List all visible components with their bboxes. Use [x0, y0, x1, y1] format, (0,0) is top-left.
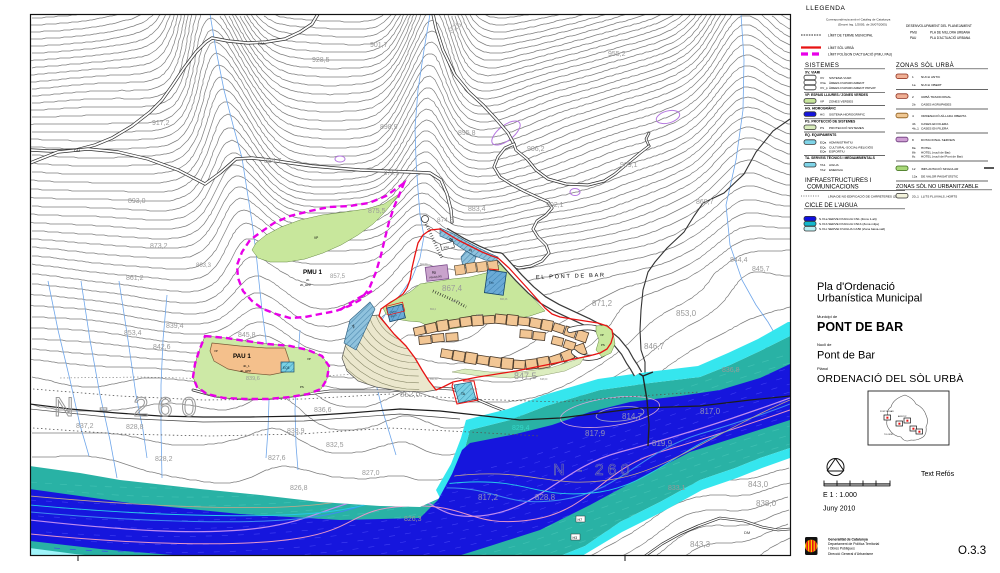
svg-text:829,4: 829,4 [512, 425, 530, 432]
svg-text:848,00: 848,00 [540, 378, 548, 381]
svg-text:VP: VP [314, 236, 318, 240]
svg-text:LÍMIT SÒL URBÀ: LÍMIT SÒL URBÀ [828, 45, 855, 50]
svg-text:842,6: 842,6 [153, 344, 171, 351]
svg-text:828,8: 828,8 [126, 424, 144, 431]
svg-text:865,30: 865,30 [476, 314, 484, 317]
svg-text:HG: HG [820, 113, 825, 117]
svg-text:INFRAESTRUCTURES I: INFRAESTRUCTURES I [805, 178, 872, 184]
svg-text:2b: 2b [912, 103, 916, 107]
svg-text:909,1: 909,1 [620, 162, 638, 169]
svg-text:XV_p: XV_p [820, 86, 828, 90]
svg-text:845,06: 845,06 [470, 388, 478, 391]
svg-text:CICLE DE L'AIGUA: CICLE DE L'AIGUA [805, 203, 858, 209]
svg-text:874,6: 874,6 [437, 217, 454, 224]
svg-text:814,7: 814,7 [622, 412, 643, 421]
svg-text:SISTEMA HIDROGRÀFIC: SISTEMA HIDROGRÀFIC [829, 113, 866, 117]
svg-text:COMUNICACIONS: COMUNICACIONS [807, 185, 859, 191]
svg-text:1a: 1a [912, 83, 916, 87]
svg-text:Nucli de: Nucli de [817, 342, 832, 347]
svg-text:839,4: 839,4 [166, 323, 184, 330]
svg-text:ARISTOT: ARISTOT [898, 415, 907, 418]
svg-text:875,5: 875,5 [368, 208, 386, 215]
svg-text:XV. VIARI: XV. VIARI [805, 71, 820, 75]
svg-text:Urbanística Municipal: Urbanística Municipal [817, 293, 922, 305]
svg-text:836,8: 836,8 [722, 367, 740, 374]
svg-text:4: 4 [912, 114, 914, 118]
svg-text:HOTEL (nucli del Pont de Bar): HOTEL (nucli del Pont de Bar) [921, 155, 963, 159]
svg-text:Text Refós: Text Refós [921, 471, 955, 478]
svg-text:PAU 1: PAU 1 [233, 353, 251, 360]
svg-text:817,2: 817,2 [478, 493, 499, 502]
svg-text:HG. HIDROGRÀFIC: HG. HIDROGRÀFIC [805, 105, 836, 110]
svg-text:836,6: 836,6 [314, 407, 332, 414]
svg-text:884,7: 884,7 [264, 158, 282, 165]
svg-text:833,9: 833,9 [287, 428, 305, 435]
svg-text:LLITS FLUVIALS, HORTS: LLITS FLUVIALS, HORTS [921, 194, 957, 198]
svg-text:URBÀ TRADICIONAL: URBÀ TRADICIONAL [921, 95, 951, 99]
svg-text:839,6: 839,6 [246, 376, 260, 382]
svg-text:ZONAS SÒL URBÀ: ZONAS SÒL URBÀ [896, 62, 954, 69]
svg-text:PS: PS [300, 385, 304, 389]
svg-text:(Decret leg. 1/2005, de 26/07/: (Decret leg. 1/2005, de 26/07/2005) [838, 23, 887, 27]
svg-text:CASES AGRUPADES: CASES AGRUPADES [921, 103, 951, 107]
svg-text:PS. PROTECCIÓ DE SISTEMES: PS. PROTECCIÓ DE SISTEMES [805, 119, 856, 124]
svg-text:S.X1c SERVEI D'AIGUA CA50 (Zo: S.X1c SERVEI D'AIGUA CA50 (Zona baixa-va… [819, 227, 885, 231]
svg-text:817,9: 817,9 [585, 429, 606, 438]
svg-text:TA. SERVEIS TÈCNICS I MEDIAMBI: TA. SERVEIS TÈCNICS I MEDIAMBIENTALS [805, 155, 876, 160]
svg-text:4b: 4b [912, 122, 916, 126]
svg-text:PS: PS [820, 126, 824, 130]
svg-text:Correspondència amb el Catàleg: Correspondència amb el Catàleg de Catalu… [826, 18, 891, 22]
svg-text:867,4: 867,4 [442, 284, 463, 293]
svg-text:VP: VP [214, 349, 218, 353]
svg-text:N - 260: N - 260 [553, 462, 633, 479]
svg-text:ESPORTIU: ESPORTIU [829, 150, 845, 154]
svg-text:EQa: EQa [820, 141, 826, 145]
svg-text:861,50: 861,50 [420, 263, 428, 266]
svg-text:PROTECCIÓ SISTEMES: PROTECCIÓ SISTEMES [829, 125, 864, 130]
svg-text:866,46: 866,46 [500, 298, 508, 301]
svg-text:DE VALOR PAISATGÍSTIC: DE VALOR PAISATGÍSTIC [921, 175, 959, 179]
svg-text:843,3: 843,3 [690, 540, 711, 549]
svg-text:PONT DE BAR: PONT DE BAR [880, 410, 894, 413]
svg-text:864,2: 864,2 [430, 308, 437, 311]
svg-text:838,0: 838,0 [756, 499, 777, 508]
svg-text:CULTURAL-SOCIAL-RELIGIÓS: CULTURAL-SOCIAL-RELIGIÓS [829, 144, 873, 149]
svg-text:826,3: 826,3 [404, 516, 422, 523]
svg-text:Juny 2010: Juny 2010 [823, 506, 855, 513]
svg-text:NUCLI ANTIC: NUCLI ANTIC [921, 75, 941, 79]
svg-text:898,9: 898,9 [380, 124, 398, 131]
svg-text:20_1: 20_1 [912, 194, 919, 198]
svg-text:S.X1a SERVEI D'AIGUA CN1 (Zon: S.X1a SERVEI D'AIGUA CN1 (Zona 1-alt) [819, 217, 877, 221]
svg-text:12: 12 [912, 167, 916, 171]
svg-text:Municipi de: Municipi de [817, 314, 838, 319]
svg-text:TA2: TA2 [820, 168, 826, 172]
svg-text:837,2: 837,2 [76, 423, 94, 430]
svg-text:845,8: 845,8 [238, 332, 256, 339]
svg-text:2b: 2b [306, 278, 310, 282]
svg-text:883,4: 883,4 [468, 206, 486, 213]
svg-text:ADMINISTRATIU: ADMINISTRATIU [829, 141, 853, 145]
svg-text:E 1 : 1.000: E 1 : 1.000 [823, 492, 857, 499]
svg-text:VP. ESPAIS LLIURES / ZONES VER: VP. ESPAIS LLIURES / ZONES VERDES [805, 93, 869, 97]
svg-text:902,1: 902,1 [546, 202, 564, 209]
svg-text:TOLORIU: TOLORIU [884, 434, 893, 436]
svg-text:XVa: XVa [820, 81, 826, 85]
svg-text:ÀREES D'APARCAMENT PRIVAT: ÀREES D'APARCAMENT PRIVAT [829, 86, 876, 90]
svg-text:ÀREES D'APARCAMENT: ÀREES D'APARCAMENT [829, 81, 865, 85]
svg-text:857,5: 857,5 [330, 274, 346, 280]
svg-text:H3: H3 [573, 536, 578, 540]
svg-text:SISTEMA VIARI: SISTEMA VIARI [829, 76, 851, 80]
svg-text:PONT DE BAR: PONT DE BAR [817, 320, 903, 334]
svg-text:906,2: 906,2 [527, 146, 545, 153]
svg-text:PMU 1: PMU 1 [303, 269, 322, 276]
svg-text:8: 8 [912, 138, 914, 142]
svg-text:NUCLI OBERT: NUCLI OBERT [921, 83, 942, 87]
svg-text:832,5: 832,5 [326, 442, 344, 449]
svg-text:S.X1b SERVEI D'AIGUA CN1b (Zo: S.X1b SERVEI D'AIGUA CN1b (Zona mitja) [819, 222, 879, 226]
svg-text:893,0: 893,0 [128, 198, 146, 205]
svg-text:DM: DM [74, 148, 80, 153]
svg-text:846,7: 846,7 [644, 342, 665, 351]
svg-text:DOTACIONAL SERVEIS: DOTACIONAL SERVEIS [921, 138, 955, 142]
svg-text:SISTEMES: SISTEMES [805, 63, 839, 69]
svg-text:4b_1: 4b_1 [912, 126, 919, 130]
svg-text:DM: DM [744, 530, 750, 535]
svg-text:ORDENACIÓ DEL SÒL URBÀ: ORDENACIÓ DEL SÒL URBÀ [817, 372, 964, 385]
svg-text:4b_1: 4b_1 [243, 364, 250, 368]
svg-text:ENERGIA: ENERGIA [829, 168, 844, 172]
svg-text:2: 2 [912, 95, 914, 99]
svg-text:PAU: PAU [910, 36, 917, 40]
svg-text:PS: PS [601, 343, 605, 347]
svg-text:827,0: 827,0 [362, 470, 380, 477]
svg-text:917,2: 917,2 [152, 120, 170, 127]
svg-text:852,0: 852,0 [400, 390, 421, 399]
svg-text:TA1: TA1 [820, 163, 826, 167]
svg-text:847,5: 847,5 [514, 371, 537, 381]
svg-text:Generalitat de Catalunya: Generalitat de Catalunya [828, 538, 868, 542]
svg-text:1: 1 [912, 75, 914, 79]
svg-text:8g: 8g [432, 270, 436, 274]
svg-text:EQ8: EQ8 [283, 366, 290, 370]
svg-text:LLEGENDA: LLEGENDA [806, 5, 846, 12]
svg-text:PMU: PMU [910, 31, 918, 35]
svg-text:828,8: 828,8 [535, 493, 556, 502]
svg-text:817,0: 817,0 [700, 407, 721, 416]
svg-text:928,5: 928,5 [312, 57, 330, 64]
svg-text:DESENVOLUPAMENT DEL PLANEJAMEN: DESENVOLUPAMENT DEL PLANEJAMENT [906, 24, 972, 28]
svg-text:CASES EN FILERA: CASES EN FILERA [921, 122, 949, 126]
svg-text:866,40: 866,40 [452, 300, 460, 303]
svg-text:Plànol: Plànol [817, 366, 828, 371]
svg-text:873,2: 873,2 [150, 243, 168, 250]
svg-text:861,2: 861,2 [126, 275, 144, 282]
svg-text:853,0: 853,0 [676, 309, 697, 318]
svg-text:VP: VP [307, 357, 311, 361]
svg-text:955,2: 955,2 [608, 51, 626, 58]
svg-text:LÍMIT DE TERME MUNICIPAL: LÍMIT DE TERME MUNICIPAL [828, 34, 873, 38]
svg-text:845,7: 845,7 [752, 266, 770, 273]
svg-text:850,30: 850,30 [430, 378, 438, 381]
svg-text:Pont de Bar: Pont de Bar [817, 350, 875, 362]
svg-text:874,1: 874,1 [384, 171, 400, 177]
svg-text:LÍNIA DE NO EDIFICACIÓ DE CARR: LÍNIA DE NO EDIFICACIÓ DE CARRETERES (25… [828, 193, 901, 198]
svg-text:EQe: EQe [820, 150, 826, 154]
svg-text:CASES EN FILERA: CASES EN FILERA [921, 126, 949, 130]
svg-text:Pla d'Ordenació: Pla d'Ordenació [817, 281, 895, 293]
svg-text:833,1: 833,1 [668, 485, 686, 492]
svg-text:Direcció General d'Urbanisme: Direcció General d'Urbanisme [828, 552, 873, 556]
svg-text:871,2: 871,2 [592, 299, 613, 308]
svg-text:DM: DM [258, 41, 264, 46]
svg-text:4b_HPP: 4b_HPP [240, 369, 251, 373]
svg-text:2b_HPP: 2b_HPP [300, 283, 311, 287]
svg-text:VP: VP [600, 333, 604, 337]
svg-text:ZONES VERDES: ZONES VERDES [829, 99, 853, 103]
svg-text:O.3.3: O.3.3 [958, 545, 986, 557]
svg-text:IMPLANTACIÓ SINGULAR: IMPLANTACIÓ SINGULAR [921, 166, 959, 171]
svg-text:ZONAS SÒL NO URBANITZABLE: ZONAS SÒL NO URBANITZABLE [896, 183, 979, 190]
svg-text:895,8: 895,8 [458, 130, 476, 137]
svg-text:853,4: 853,4 [124, 330, 142, 337]
svg-text:PLA DE MILLORA URBANA: PLA DE MILLORA URBANA [930, 31, 971, 35]
svg-text:826,8: 826,8 [290, 485, 308, 492]
svg-text:H7: H7 [578, 518, 583, 522]
svg-text:i Obres Públiques: i Obres Públiques [828, 546, 855, 550]
svg-text:819,9: 819,9 [652, 439, 673, 448]
svg-text:PLA D'ACTUACIÓ URBANA: PLA D'ACTUACIÓ URBANA [930, 35, 971, 40]
svg-text:12a: 12a [912, 175, 917, 179]
svg-text:828,2: 828,2 [155, 456, 173, 463]
svg-text:844,4: 844,4 [730, 257, 748, 264]
svg-text:869,7: 869,7 [696, 199, 714, 206]
svg-text:VP: VP [820, 99, 824, 103]
svg-text:EQ. EQUIPAMENTS: EQ. EQUIPAMENTS [805, 133, 837, 137]
svg-text:LÍMIT POLÍGON D'ACTUACIÓ (PMU,: LÍMIT POLÍGON D'ACTUACIÓ (PMU, PAU) [828, 52, 892, 57]
svg-text:AIGUA: AIGUA [829, 163, 840, 167]
svg-text:N - 260: N - 260 [54, 392, 206, 422]
svg-text:ORDENACIÓ AÏLLADA OBERTA: ORDENACIÓ AÏLLADA OBERTA [921, 113, 967, 118]
svg-text:843,0: 843,0 [748, 480, 769, 489]
svg-text:863,3: 863,3 [196, 263, 212, 269]
svg-text:901,7: 901,7 [370, 42, 388, 49]
svg-text:827,6: 827,6 [268, 455, 286, 462]
svg-text:8c: 8c [912, 155, 916, 159]
